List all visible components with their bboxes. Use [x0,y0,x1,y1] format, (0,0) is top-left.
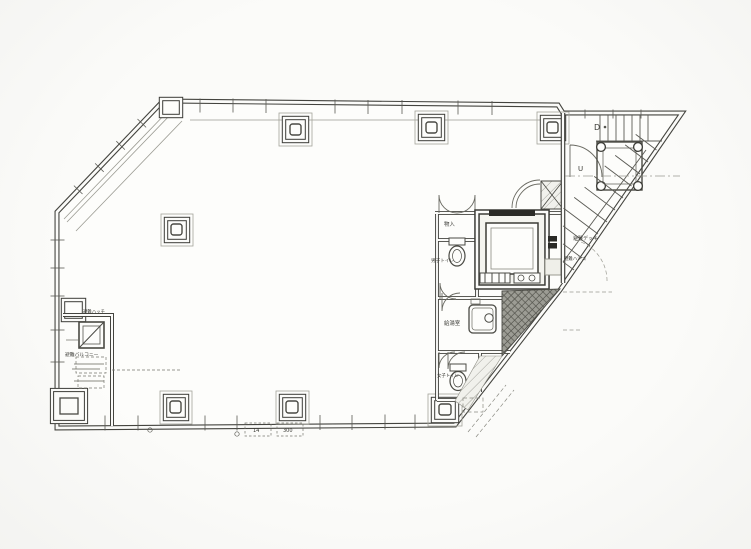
elevator-door [489,210,535,216]
mens-toilet-label: 男子トイレ [431,257,454,264]
stair-up-label: U [578,165,583,173]
building-outline [57,101,682,428]
evac-hatch-label: 避難ハッチ [83,308,105,315]
elevator-car [486,223,538,274]
tag-b-label: 300 [283,428,293,434]
evac-ladder-label: 避難ハシゴ [564,255,587,262]
floor-plan-sheet: 避難ハッチ 避難バルコニー [0,0,751,549]
elevator-shaft [477,210,561,287]
stair-down-label: D [594,123,600,132]
tag-a-label: 14 [253,428,259,434]
elevator-machinery [480,273,540,283]
evac-deck-label: 避難デッキ [573,235,598,242]
kitchenette-label: 給湯室 [444,319,461,327]
evac-hatch-symbol [79,322,104,348]
womens-toilet-label: 女子トイレ [437,372,459,379]
corner-column [52,390,86,422]
storage-label: 物入 [444,220,455,228]
duct-shaft [541,181,563,209]
floor-plan-drawing: 避難ハッチ 避難バルコニー [0,0,751,549]
